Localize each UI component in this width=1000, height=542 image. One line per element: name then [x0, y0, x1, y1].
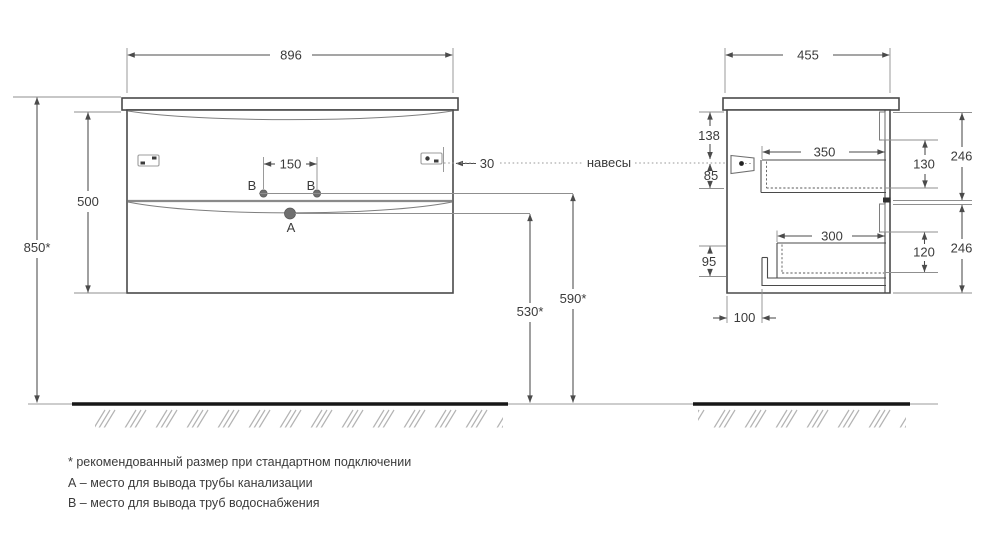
dim-hanger-offset-label: 30	[480, 156, 494, 171]
supply-right-label: B	[307, 178, 316, 193]
dim-drawer-bottom-depth-label: 300	[821, 229, 843, 244]
hanger-bracket-icon	[731, 156, 754, 174]
floor-hatching-left	[95, 407, 503, 428]
front-view: B B A	[122, 98, 458, 293]
front-countertop	[122, 98, 458, 110]
footnote-recommended-size: * рекомендованный размер при стандартном…	[68, 455, 411, 469]
supply-left-label: B	[248, 178, 257, 193]
dim-drawer-top-depth-label: 350	[814, 145, 836, 160]
technical-drawing: B B A 896 500 850* 150 30	[0, 0, 1000, 542]
dim-supply-spacing-label: 150	[280, 157, 302, 172]
hangers-label: навесы	[587, 155, 631, 170]
dim-depth-label: 455	[797, 48, 819, 63]
dim-supply-height-label: 590*	[560, 291, 587, 306]
hanger-right-icon	[421, 153, 442, 164]
dim-drawer-bottom-height-label: 120	[913, 245, 935, 260]
dim-channel-offset-label: 100	[734, 310, 756, 325]
side-countertop	[723, 98, 899, 110]
dim-hanger-to-drawer-label: 85	[704, 168, 718, 183]
dim-body-height-label: 500	[77, 194, 99, 209]
side-view	[723, 98, 899, 293]
dim-top-to-hanger-label: 138	[698, 128, 720, 143]
dim-mount-height-label: 850*	[24, 240, 51, 255]
dim-front-bottom-height-label: 246	[951, 241, 973, 256]
footnotes: * рекомендованный размер при стандартном…	[68, 455, 411, 510]
dim-front-top-height-label: 246	[951, 149, 973, 164]
vanity-dimension-drawing: B B A 896 500 850* 150 30	[0, 0, 1000, 542]
floor-hatching-right	[698, 407, 906, 428]
footnote-drain-pipe: А – место для вывода трубы канализации	[68, 476, 313, 490]
dim-drawer-top-height-label: 130	[913, 157, 935, 172]
drain-label: A	[287, 220, 296, 235]
dim-width-label: 896	[280, 48, 302, 63]
drawer-front-seam	[883, 198, 891, 203]
dim-drain-height-label: 530*	[517, 304, 544, 319]
drain-point	[285, 208, 296, 219]
dim-back-clearance-label: 95	[702, 254, 716, 269]
side-cabinet-body	[727, 110, 890, 293]
footnote-supply-pipes: B – место для вывода труб водоснабжения	[68, 496, 319, 510]
hanger-left-icon	[138, 155, 159, 166]
floor-line	[28, 404, 938, 428]
